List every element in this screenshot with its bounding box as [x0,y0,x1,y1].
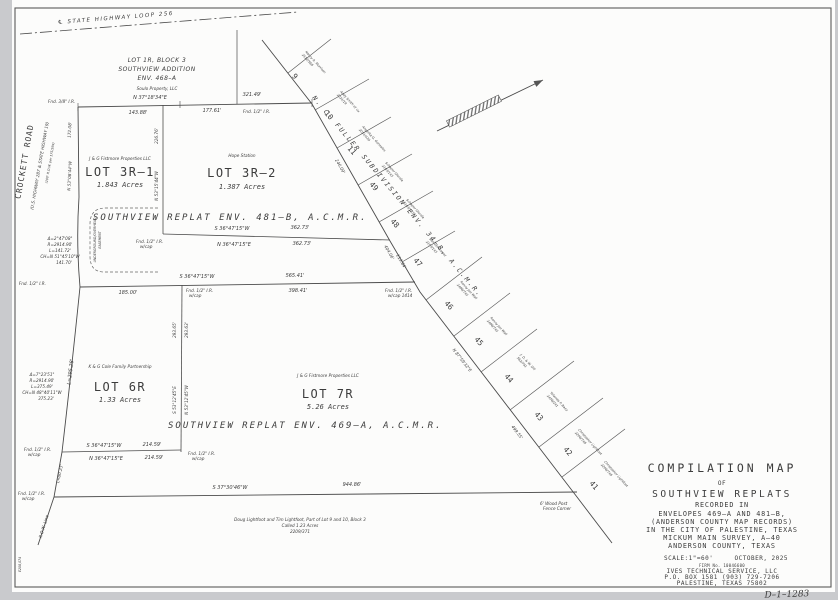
title-scale: SCALE:1"=60' [664,555,713,562]
title-line2: OF [718,480,726,487]
b6r-n: N 36°47'15"E [89,456,124,462]
title-line5: ENVELOPES 469–A AND 481–B, [658,510,785,518]
curve1-ch: CH=N 51°45'10"W [40,254,80,259]
lot6r-name: LOT 6R [94,380,146,394]
title-line8: MICKUM MAIN SURVEY, A–40 [663,534,780,542]
curve2-r: R=2914.90' [30,378,55,383]
lot7r-name: LOT 7R [302,387,354,401]
lot1r-owner: Soulo Property, LLC [137,86,178,91]
curve2-l: L=375.49' [31,384,53,389]
curve1-delta: Δ=2°47'08" [47,236,73,241]
monument-l362-wcap: w/cap [140,244,153,249]
lot6r-owner: K & G Cole Family Partnership [88,364,151,369]
curve2-ch: CH=N 48°40'11"W [22,390,62,395]
b6r-s: S 36°47'15"W [87,443,123,449]
div1-bearing: N 53°15'44"W [154,170,159,201]
lot3r2-owner: Hope Station [228,153,256,158]
lot3r2-acres: 1.387 Acres [219,183,265,191]
monument-b6r-right-wcap: w/cap [192,456,205,461]
l362-nd: 362.73' [293,241,312,247]
bottom-bearing: S 37°30'46"W [213,485,249,491]
div1-dist: 226.76' [154,128,159,144]
monument-fnd12-west: Fnd. 1/2" I.R. [19,281,46,286]
margin-code: E208,074 [18,557,22,572]
title-line6: (ANDERSON COUNTY MAP RECORDS) [651,518,793,526]
curve2-chd: 375.23' [38,396,54,401]
curve2-delta: Δ=7°23'51" [29,372,55,377]
note-line3: 2209/371 [290,529,310,534]
lot3r1-acres: 1.843 Acres [97,181,143,189]
top-total: 321.49' [243,92,262,98]
monument-mid-wcap: w/cap [189,293,202,298]
monument-fnd38: Fnd. 3/8" I.R. [48,99,75,104]
lot3r1-owner: J & G Fistmore Properties LLC [88,156,151,161]
lot1r-line1: LOT 1R, BLOCK 3 [128,57,187,64]
monument-fnd12-ne: Fnd. 1/2" I.R. [243,109,270,114]
lot3r2-name: LOT 3R–2 [207,166,277,180]
replat-env481: SOUTHVIEW REPLAT ENV. 481–B, A.C.M.R. [93,213,367,223]
top-bearing: N 37°18'34"E [133,95,168,101]
top-d1: 143.88' [129,110,148,116]
fence-corner-line2: Fence Corner [543,506,571,511]
easement-line2: EASEMENT [98,230,102,248]
l362-n: N 36°47'15"E [217,242,252,248]
monument-b6r-left-wcap: w/cap [28,452,41,457]
easement-line1: UNDERGROUND/OVERHEAD [93,217,97,262]
title-line9: ANDERSON COUNTY, TEXAS [668,542,776,550]
mid-d1: 185.00' [119,290,138,296]
lot7r-acres: 5.26 Acres [307,403,349,411]
div2-n: N 53°12'45"W [184,384,189,415]
note-line1: Doug Lightfoot and Tim Lightfoot, Part o… [234,517,366,522]
title-city: PALESTINE, TEXAS 75802 [677,580,767,587]
replat-env469: SOUTHVIEW REPLAT ENV. 469–A, A.C.M.R. [168,421,442,431]
monument-sw-wcap: w/cap [22,496,35,501]
sheet-number: D–1–1283 [763,589,809,600]
plat-map-svg: ℄ STATE HIGHWAY LOOP 256 CROCKETT ROAD (… [0,0,838,600]
curve1-r: R=2914.90' [48,242,73,247]
mid-sub: 398.41' [289,288,308,294]
lot1r-line2: SOUTHVIEW ADDITION [118,66,195,73]
b6r-sd: 214.59' [143,442,162,448]
bottom-dist: 944.86' [343,482,362,488]
div2-dl: 293.65' [172,322,177,338]
title-line4: RECORDED IN [695,501,749,509]
lot7r-owner: J & G Fistmore Properties LLC [296,373,359,378]
title-date: OCTOBER, 2025 [735,555,788,562]
title-line1: COMPILATION MAP [648,461,797,475]
mid-total: 565.41' [286,273,305,279]
b6r-nd: 214.59' [145,455,164,461]
l362-sd: 362.73' [291,225,310,231]
mid-bearing: S 36°47'15"W [180,274,216,280]
west-dist: 172.08' [67,122,73,138]
curve1-l: L=141.72' [49,248,71,253]
div2-s: S 53°12'45"E [172,386,177,414]
curve1-chd: 141.70' [56,260,72,265]
div2-dr: 293.63' [184,322,189,338]
lot6r-acres: 1.33 Acres [99,396,141,404]
title-line3: SOUTHVIEW REPLATS [652,489,792,500]
note-line2: Called 1.23 Acres [282,523,320,528]
lot1r-line3: ENV. 468–A [137,75,176,82]
l362-s: S 36°47'15"W [215,226,251,232]
top-d2: 177.61' [203,108,222,114]
monument-diag-wcap1414: w/cap 1414 [388,293,413,298]
plat-map-sheet: ℄ STATE HIGHWAY LOOP 256 CROCKETT ROAD (… [0,0,838,600]
title-line7: IN THE CITY OF PALESTINE, TEXAS [646,526,798,534]
lot3r1-name: LOT 3R–1 [85,165,155,179]
